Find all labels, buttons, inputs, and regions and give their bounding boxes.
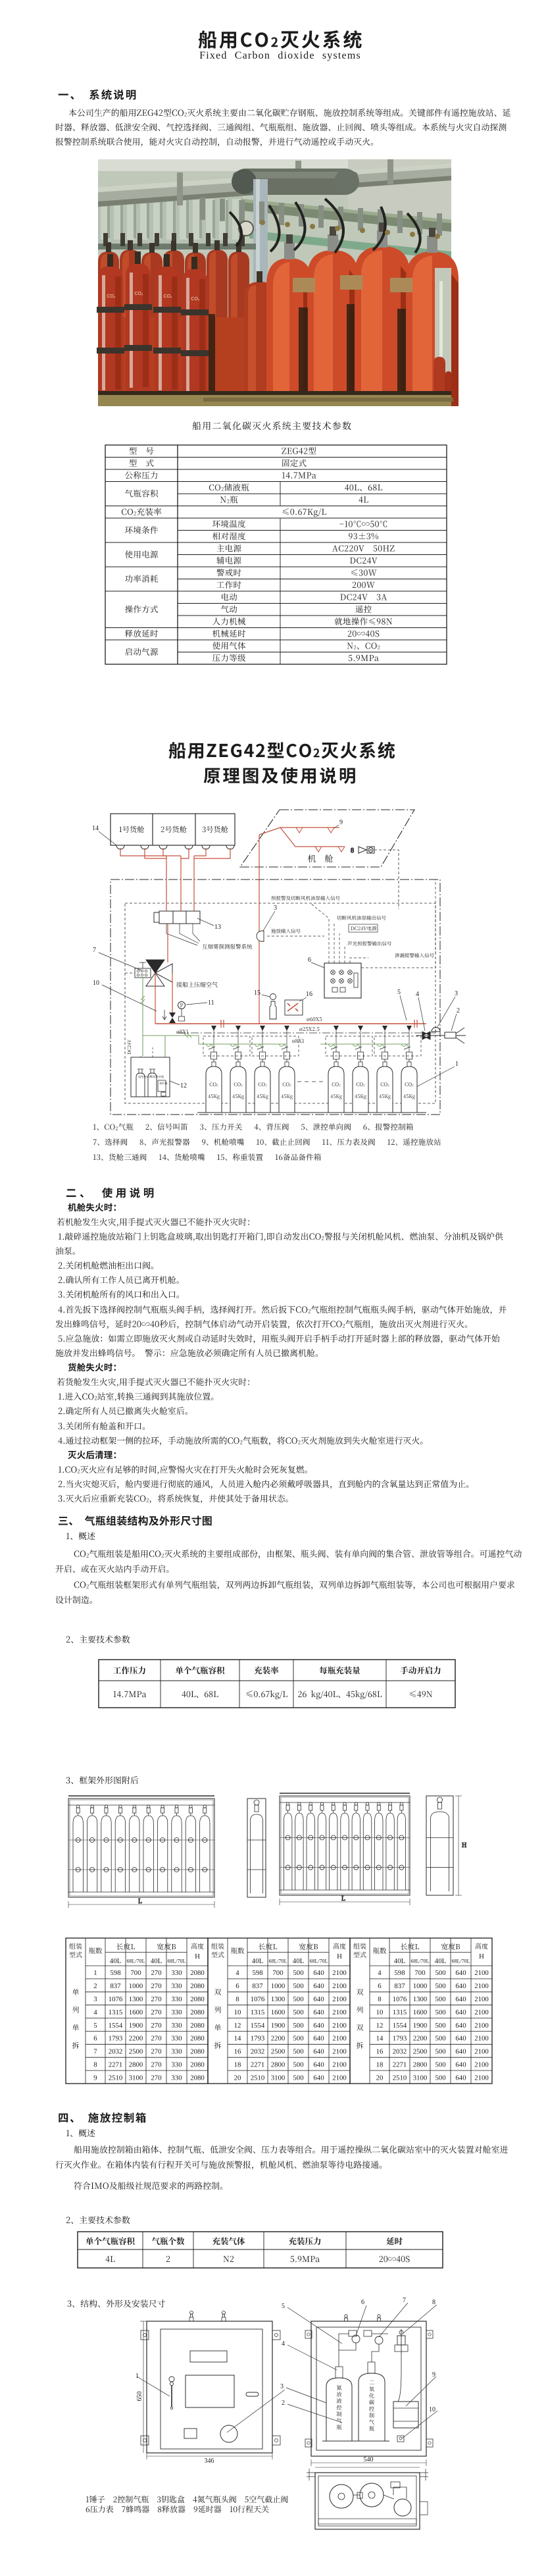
svg-text:5: 5 (282, 2303, 285, 2310)
svg-text:346: 346 (205, 2458, 214, 2465)
svg-text:2: 2 (282, 2400, 285, 2407)
svg-text:10: 10 (429, 2406, 435, 2413)
svg-text:6: 6 (361, 2299, 364, 2306)
svg-text:9: 9 (432, 2371, 435, 2379)
svg-text:1: 1 (136, 2373, 139, 2380)
svg-text:7: 7 (403, 2297, 406, 2304)
svg-text:8: 8 (432, 2299, 435, 2306)
svg-text:540: 540 (364, 2456, 374, 2463)
svg-text:650: 650 (136, 2392, 143, 2402)
svg-text:4: 4 (282, 2340, 285, 2348)
svg-text:3: 3 (280, 2383, 284, 2390)
